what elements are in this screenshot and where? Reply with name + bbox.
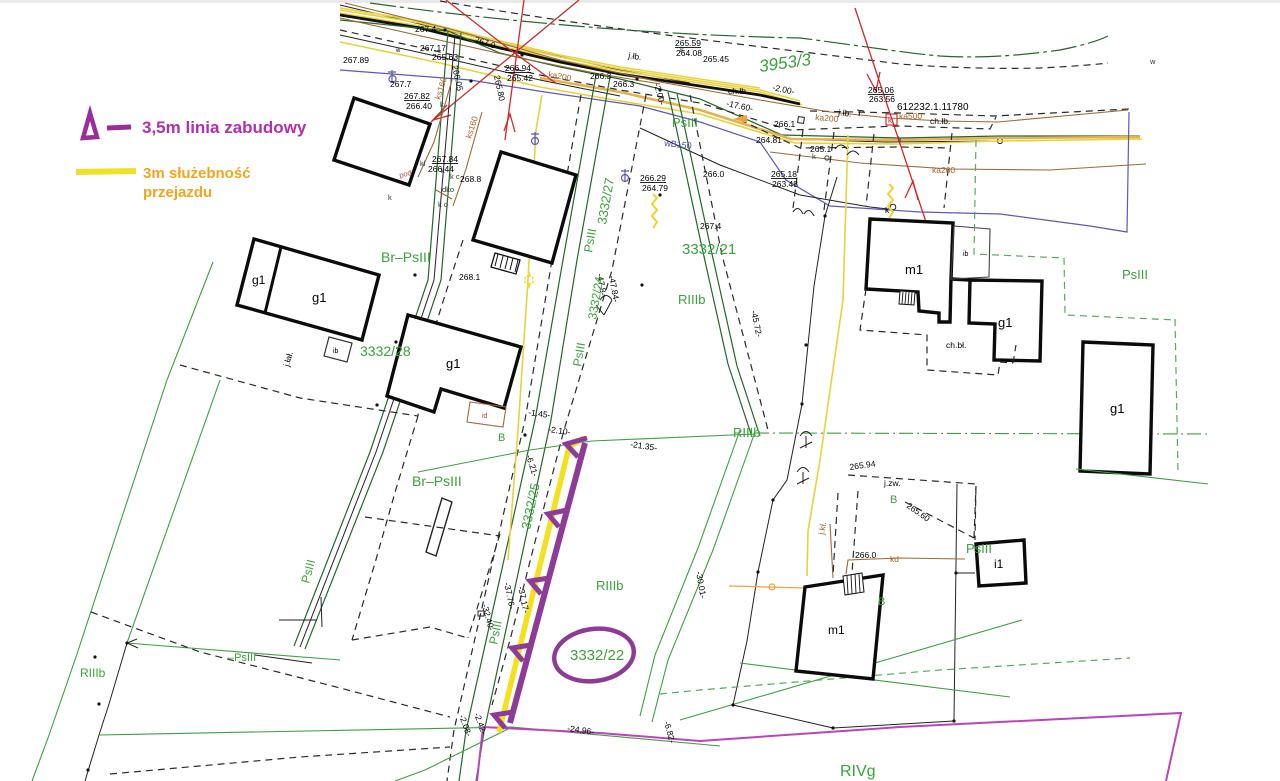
svg-text:–PsIII: –PsIII — [228, 652, 256, 664]
svg-text:3,5m linia zabudowy: 3,5m linia zabudowy — [142, 118, 307, 137]
svg-text:g1: g1 — [1110, 401, 1124, 416]
svg-text:267.84: 267.84 — [432, 154, 458, 164]
svg-text:PsIII: PsIII — [966, 541, 992, 556]
svg-text:267.89: 267.89 — [343, 55, 369, 65]
svg-text:g1: g1 — [252, 273, 266, 287]
svg-text:265.63: 265.63 — [432, 52, 458, 62]
svg-text:266.40: 266.40 — [406, 101, 432, 111]
svg-text:w: w — [1149, 57, 1156, 66]
svg-text:263.48: 263.48 — [772, 179, 798, 189]
svg-text:265.42: 265.42 — [507, 73, 533, 83]
svg-text:266.3: 266.3 — [590, 71, 612, 81]
svg-text:B: B — [890, 494, 897, 506]
svg-text:3332/21: 3332/21 — [682, 241, 736, 258]
svg-text:267.82: 267.82 — [404, 91, 430, 101]
svg-text:268.1: 268.1 — [459, 272, 481, 282]
svg-text:PsIII: PsIII — [1122, 267, 1148, 282]
svg-text:264.81: 264.81 — [756, 135, 782, 145]
svg-text:i1: i1 — [994, 557, 1004, 571]
svg-text:w: w — [395, 48, 401, 54]
svg-text:g1: g1 — [312, 290, 326, 305]
svg-text:PsIII: PsIII — [672, 115, 698, 130]
svg-text:267.4: 267.4 — [700, 221, 722, 231]
svg-text:266.94: 266.94 — [505, 63, 531, 73]
svg-text:ka200: ka200 — [815, 112, 839, 124]
svg-text:Br–PsIII: Br–PsIII — [412, 473, 462, 489]
svg-text:268.8: 268.8 — [460, 174, 482, 184]
svg-text:k c: k c — [450, 172, 460, 181]
svg-text:266.0: 266.0 — [855, 550, 877, 560]
svg-text:ib: ib — [333, 348, 339, 355]
svg-text:ch.łb.: ch.łb. — [728, 86, 748, 96]
svg-text:265.18: 265.18 — [771, 169, 797, 179]
svg-text:k: k — [898, 135, 902, 144]
svg-text:g1: g1 — [998, 315, 1012, 330]
svg-text:3332/28: 3332/28 — [360, 343, 411, 359]
svg-text:j.zw.: j.zw. — [883, 478, 901, 488]
svg-text:id: id — [482, 413, 488, 420]
svg-text:RIIIb: RIIIb — [80, 666, 106, 680]
svg-text:267.7: 267.7 — [390, 79, 412, 89]
svg-text:266.3: 266.3 — [613, 79, 635, 89]
svg-text:266.1: 266.1 — [774, 119, 796, 129]
svg-text:k: k — [388, 193, 392, 202]
svg-text:ib: ib — [963, 251, 969, 258]
svg-text:m1: m1 — [905, 262, 923, 277]
svg-text:k: k — [441, 166, 445, 175]
svg-text:k: k — [680, 45, 684, 54]
svg-text:266.0: 266.0 — [703, 169, 725, 179]
svg-text:ka200: ka200 — [932, 165, 955, 175]
svg-text:263.56: 263.56 — [869, 94, 895, 104]
svg-text:RIIIb: RIIIb — [596, 578, 623, 593]
svg-text:B: B — [878, 596, 885, 608]
svg-text:RIVg: RIVg — [840, 763, 876, 780]
svg-text:265.45: 265.45 — [703, 54, 729, 64]
svg-text:kd: kd — [890, 554, 899, 564]
svg-text:ch.bł.: ch.bł. — [946, 340, 966, 350]
svg-text:kl: kl — [420, 159, 426, 168]
svg-text:3332/22: 3332/22 — [570, 647, 624, 664]
svg-text:264.79: 264.79 — [642, 183, 668, 193]
svg-text:267.4: 267.4 — [415, 24, 437, 34]
svg-text:266.29: 266.29 — [640, 173, 666, 183]
svg-text:265.59: 265.59 — [675, 38, 701, 48]
svg-text:przejazdu: przejazdu — [143, 184, 212, 201]
svg-text:Br–PsIII: Br–PsIII — [381, 249, 431, 265]
svg-text:ch.łb.: ch.łb. — [930, 116, 950, 126]
svg-text:3m służebność: 3m służebność — [143, 165, 251, 182]
svg-text:j.łb.: j.łb. — [837, 107, 852, 119]
svg-text:m1: m1 — [828, 623, 845, 637]
svg-text:RIIIb: RIIIb — [733, 425, 760, 440]
svg-text:B: B — [498, 432, 505, 444]
svg-text:dko: dko — [442, 185, 454, 194]
svg-text:RIIIb: RIIIb — [678, 292, 705, 307]
svg-text:ka500: ka500 — [899, 111, 922, 121]
svg-text:g1: g1 — [446, 356, 460, 371]
svg-text:k: k — [812, 152, 816, 161]
svg-text:k o: k o — [438, 200, 448, 209]
svg-text:k: k — [440, 100, 444, 109]
